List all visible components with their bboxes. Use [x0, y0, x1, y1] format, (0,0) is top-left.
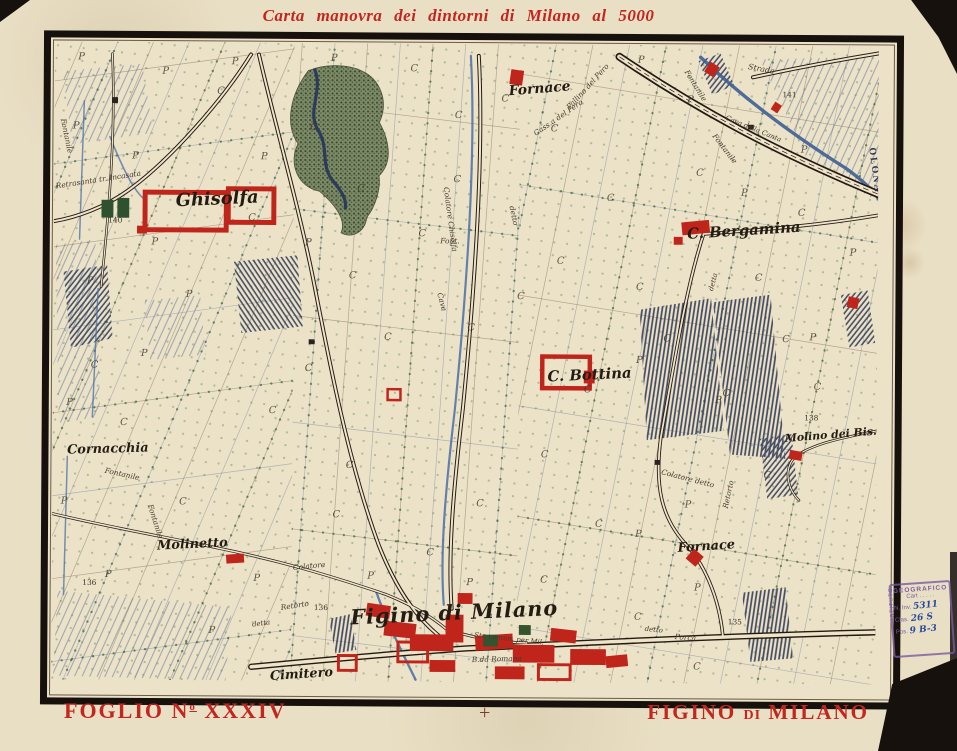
land-use-letter: C — [595, 519, 603, 530]
road-label: B.da Romana — [471, 654, 522, 664]
land-use-letter: P — [304, 237, 312, 248]
sheet-ordinal: o — [189, 701, 197, 713]
land-use-letter: C — [693, 662, 701, 673]
land-use-letter: C — [418, 228, 426, 239]
land-use-letter: C — [426, 547, 434, 558]
land-use-letter: P — [808, 332, 816, 343]
sheet-number-label: FOGLIO No XXXIV — [64, 698, 287, 724]
library-stamp: ISTITUTO GEOGRAFICO Cart . . . . . N. In… — [888, 580, 955, 658]
stamp-field-value: 5311 — [913, 599, 939, 613]
elevation-number: 135 — [728, 617, 742, 626]
molinetto-building — [226, 554, 244, 564]
land-use-letter: P — [260, 151, 268, 162]
land-use-letter: P — [714, 395, 722, 406]
place-label: Ghisolfa — [175, 187, 259, 212]
land-use-letter: P — [635, 355, 643, 366]
land-use-letter: C — [607, 193, 615, 204]
land-use-letter: P — [693, 583, 701, 594]
land-use-letter: P — [60, 496, 68, 507]
land-use-letter: C — [91, 360, 99, 371]
land-use-letter: P — [800, 145, 808, 156]
land-use-letter: C — [384, 332, 392, 343]
land-use-letter: C — [120, 417, 128, 428]
land-use-letter: C — [634, 612, 642, 623]
land-use-letter: C — [305, 363, 313, 374]
land-use-letter: C — [179, 496, 187, 507]
stamp-field-label: Clas. — [895, 615, 909, 627]
land-use-letter: P — [849, 248, 857, 259]
land-use-letter: C — [540, 575, 548, 586]
land-use-letter: P — [140, 348, 148, 359]
land-use-letter: P — [150, 237, 158, 248]
land-use-letter: C — [663, 333, 671, 344]
land-use-letter: C — [411, 63, 419, 74]
elevation-number: 136 — [82, 578, 96, 587]
land-use-letter: P — [207, 625, 215, 636]
land-use-letter: C — [455, 110, 463, 121]
land-use-letter: C — [551, 123, 559, 134]
land-use-letter: P — [72, 120, 80, 131]
land-use-letter: P — [104, 569, 112, 580]
land-use-letter: C — [248, 212, 256, 223]
map-frame: GhisolfaFornaceC. BergaminaC. BottinaCor… — [40, 30, 904, 709]
land-use-letter: P — [161, 66, 169, 77]
sheet-roman-numeral: XXXIV — [204, 698, 286, 723]
sheet-title-part: DI — [744, 708, 762, 723]
land-use-letter: P — [77, 51, 85, 62]
land-use-letter: P — [185, 289, 193, 300]
land-use-letter: C — [476, 498, 484, 509]
land-use-letter: P — [65, 397, 73, 408]
land-use-letter: C — [782, 334, 790, 345]
land-use-letter: P — [634, 529, 642, 540]
land-use-letter: P — [252, 573, 260, 584]
land-use-letter: C — [696, 168, 704, 179]
road-label: Porca — [673, 632, 696, 643]
land-use-letter: C — [310, 122, 318, 133]
elevation-number: 140 — [108, 216, 122, 225]
map-sheet-photo: Carta manovra dei dintorni di Milano al … — [0, 0, 957, 751]
sheet-title-part: MILANO — [768, 700, 869, 724]
road-label: Font. — [439, 236, 459, 245]
stamp-field-label: N. Inv. — [894, 603, 912, 615]
land-use-letter: C — [349, 270, 357, 281]
stamp-field-label: Pos. — [896, 627, 909, 639]
land-use-letter: P — [740, 188, 748, 199]
land-use-letter: C — [467, 322, 475, 333]
land-use-letter: C — [269, 405, 277, 416]
land-use-letter: P — [686, 95, 694, 106]
land-use-letter: C — [764, 470, 772, 481]
elevation-number: 136 — [314, 603, 328, 612]
sheet-title-label: FIGINO DI MILANO — [647, 700, 869, 725]
land-use-letter: C — [517, 291, 525, 302]
land-use-letter: P — [231, 56, 239, 67]
land-use-letter: C — [798, 208, 806, 219]
land-use-letter: C — [755, 273, 763, 284]
land-use-letter: C — [584, 384, 592, 395]
land-use-letter: P — [330, 53, 338, 64]
place-label: Cornacchia — [67, 440, 149, 457]
land-use-letter: C — [217, 86, 225, 97]
land-use-letter: P — [131, 150, 139, 161]
land-use-letter: C — [357, 183, 365, 194]
land-use-letter: C — [541, 449, 549, 460]
land-use-letter: C — [346, 460, 354, 471]
sheet-prefix: FOGLIO N — [64, 698, 189, 723]
land-use-letter: P — [366, 571, 374, 582]
land-use-letter: C — [723, 388, 731, 399]
map-title: Carta manovra dei dintorni di Milano al … — [0, 6, 917, 26]
sheet-title-part: FIGINO — [647, 700, 736, 724]
land-use-letter: P — [637, 55, 645, 66]
elevation-number: 138 — [804, 413, 818, 422]
registration-cross: + — [479, 702, 490, 725]
land-use-letter: P — [684, 500, 692, 511]
land-use-letter: C — [557, 256, 565, 267]
land-use-letter: C — [453, 174, 461, 185]
land-use-letter: C — [814, 382, 822, 393]
land-use-letter: C — [333, 509, 341, 520]
land-use-letter: P — [86, 276, 94, 287]
land-use-letter: C — [501, 93, 509, 104]
map-canvas: GhisolfaFornaceC. BergaminaC. BottinaCor… — [51, 41, 879, 684]
land-use-letter: C — [636, 282, 644, 293]
land-use-letter: P — [465, 577, 473, 588]
elevation-number: 141 — [782, 90, 796, 99]
stamp-field-value: 9 B-3 — [909, 624, 937, 638]
